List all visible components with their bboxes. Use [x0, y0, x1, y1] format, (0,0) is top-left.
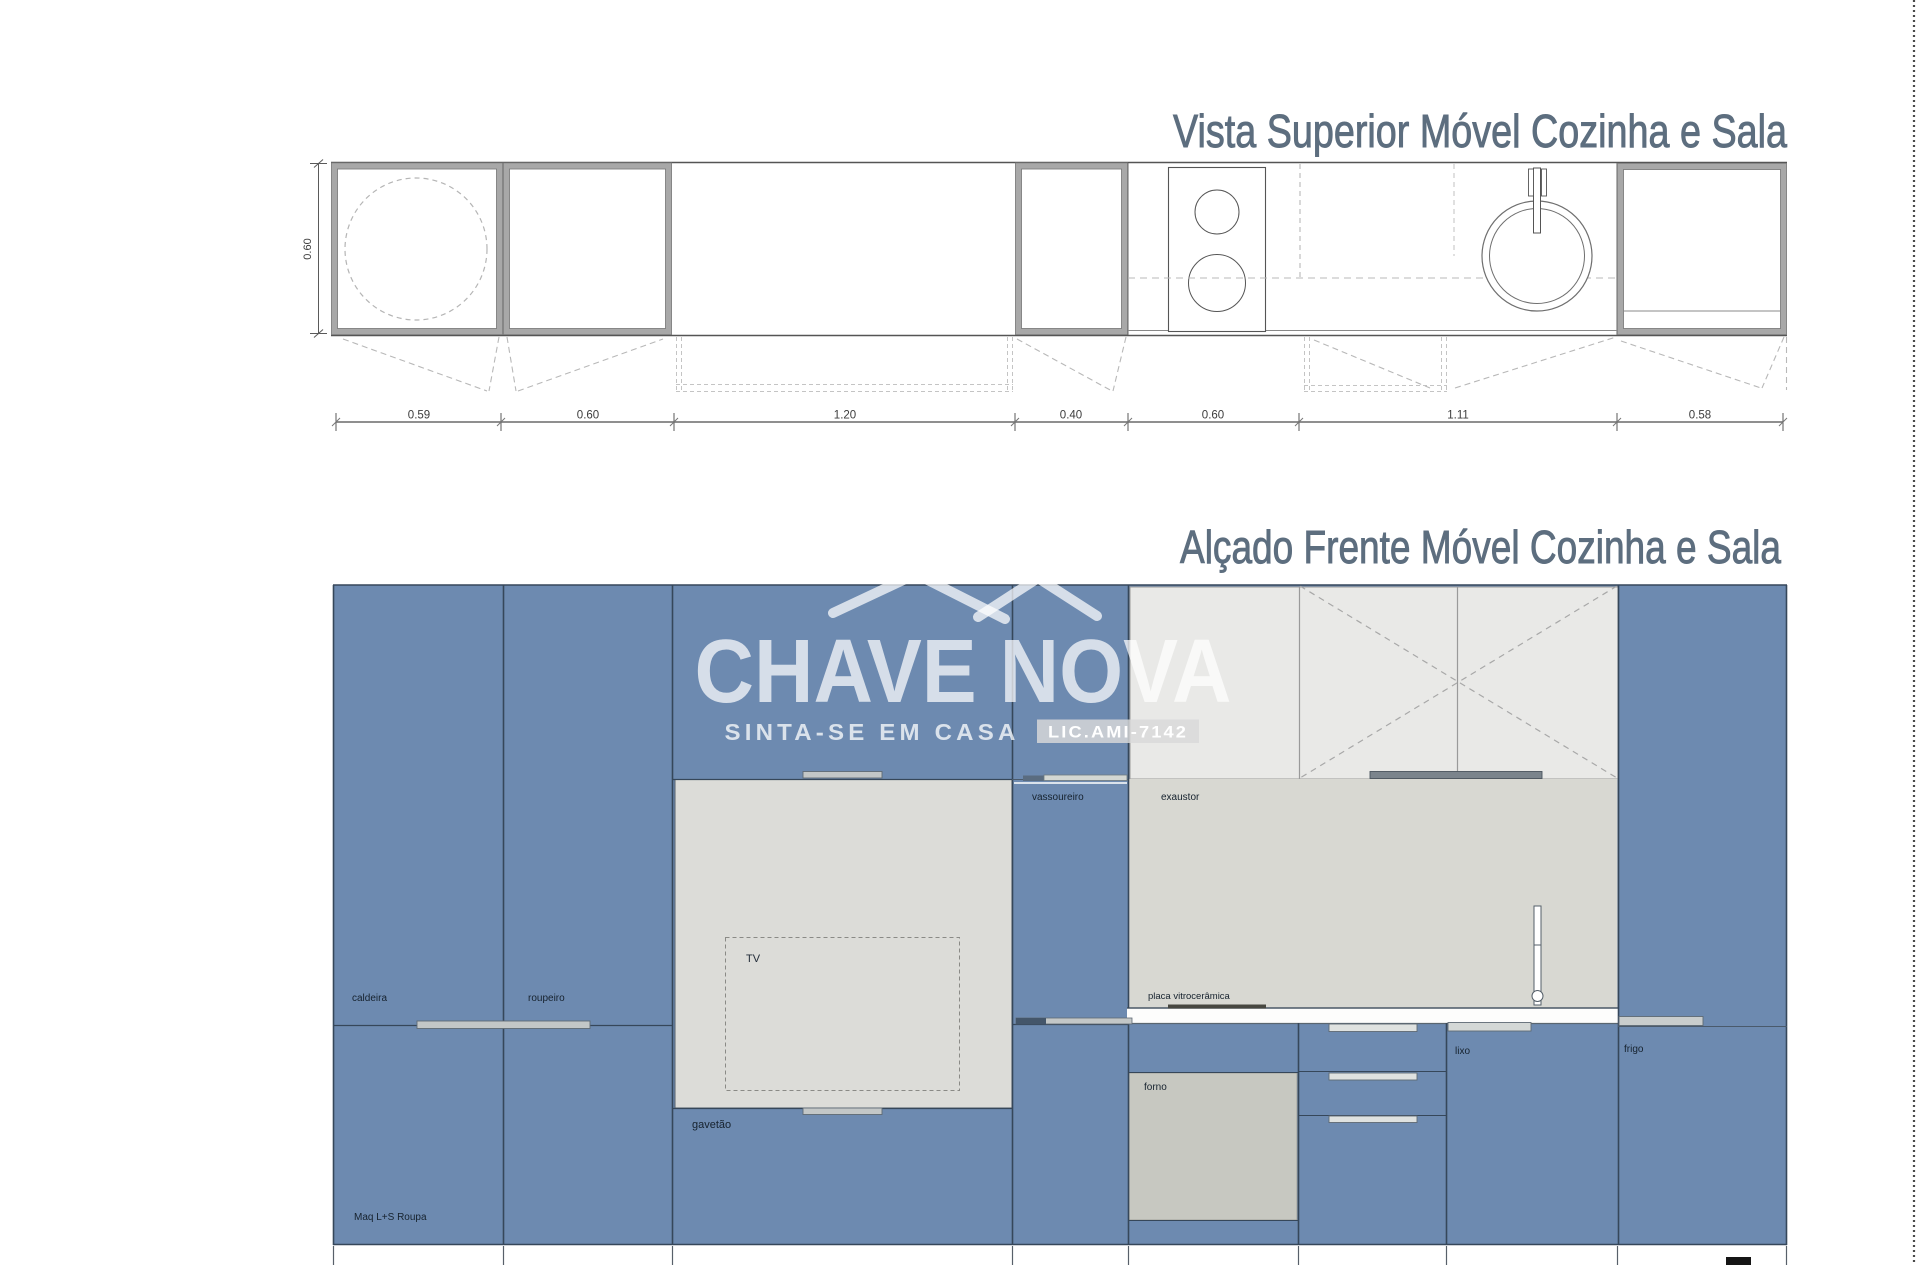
- svg-text:CHAVE NOVA: CHAVE NOVA: [695, 622, 1232, 722]
- svg-text:forno: forno: [1144, 1082, 1167, 1093]
- svg-text:1.20: 1.20: [834, 410, 856, 422]
- svg-text:lixo: lixo: [1455, 1046, 1470, 1057]
- svg-text:caldeira: caldeira: [352, 993, 387, 1004]
- svg-text:Vista Superior Móvel Cozinha e: Vista Superior Móvel Cozinha e Sala: [1173, 105, 1787, 157]
- svg-text:placa vitrocerâmica: placa vitrocerâmica: [1148, 991, 1231, 1002]
- svg-text:0.59: 0.59: [408, 410, 430, 422]
- svg-text:0.58: 0.58: [1689, 410, 1711, 422]
- svg-text:0.40: 0.40: [1060, 410, 1082, 422]
- svg-text:SINTA-SE EM CASA: SINTA-SE EM CASA: [725, 719, 1020, 745]
- svg-text:frigo: frigo: [1624, 1044, 1644, 1055]
- svg-text:LIC.AMI-7142: LIC.AMI-7142: [1048, 723, 1188, 742]
- svg-text:Maq L+S Roupa: Maq L+S Roupa: [354, 1212, 427, 1223]
- svg-text:roupeiro: roupeiro: [528, 993, 565, 1004]
- svg-text:exaustor: exaustor: [1161, 792, 1200, 803]
- svg-text:vassoureiro: vassoureiro: [1032, 792, 1084, 803]
- svg-text:TV: TV: [746, 953, 761, 965]
- svg-text:gavetão: gavetão: [692, 1119, 731, 1131]
- svg-text:Alçado Frente Móvel Cozinha e: Alçado Frente Móvel Cozinha e Sala: [1180, 521, 1781, 573]
- svg-text:0.60: 0.60: [577, 410, 599, 422]
- svg-text:1.11: 1.11: [1447, 410, 1469, 422]
- svg-text:0.60: 0.60: [302, 238, 314, 259]
- svg-text:0.60: 0.60: [1202, 410, 1224, 422]
